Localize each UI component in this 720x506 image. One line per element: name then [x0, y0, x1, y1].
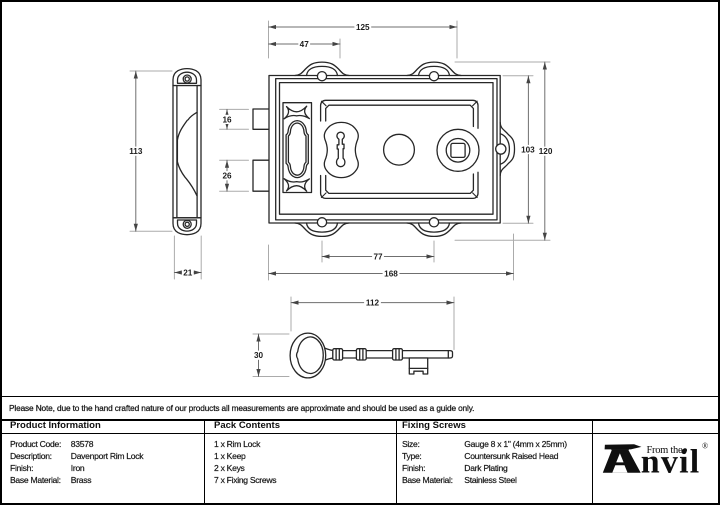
- svg-text:®: ®: [702, 442, 708, 451]
- svg-text:16: 16: [222, 115, 232, 124]
- svg-text:125: 125: [356, 23, 370, 32]
- svg-text:26: 26: [222, 172, 232, 181]
- svg-text:113: 113: [129, 147, 143, 156]
- svg-text:77: 77: [373, 253, 383, 262]
- svg-text:103: 103: [521, 146, 535, 155]
- svg-text:112: 112: [366, 299, 380, 308]
- svg-text:47: 47: [300, 40, 310, 49]
- svg-text:120: 120: [539, 147, 553, 156]
- svg-text:168: 168: [384, 270, 398, 279]
- svg-text:30: 30: [254, 351, 264, 360]
- svg-text:nvil: nvil: [641, 444, 701, 481]
- svg-text:21: 21: [183, 269, 193, 278]
